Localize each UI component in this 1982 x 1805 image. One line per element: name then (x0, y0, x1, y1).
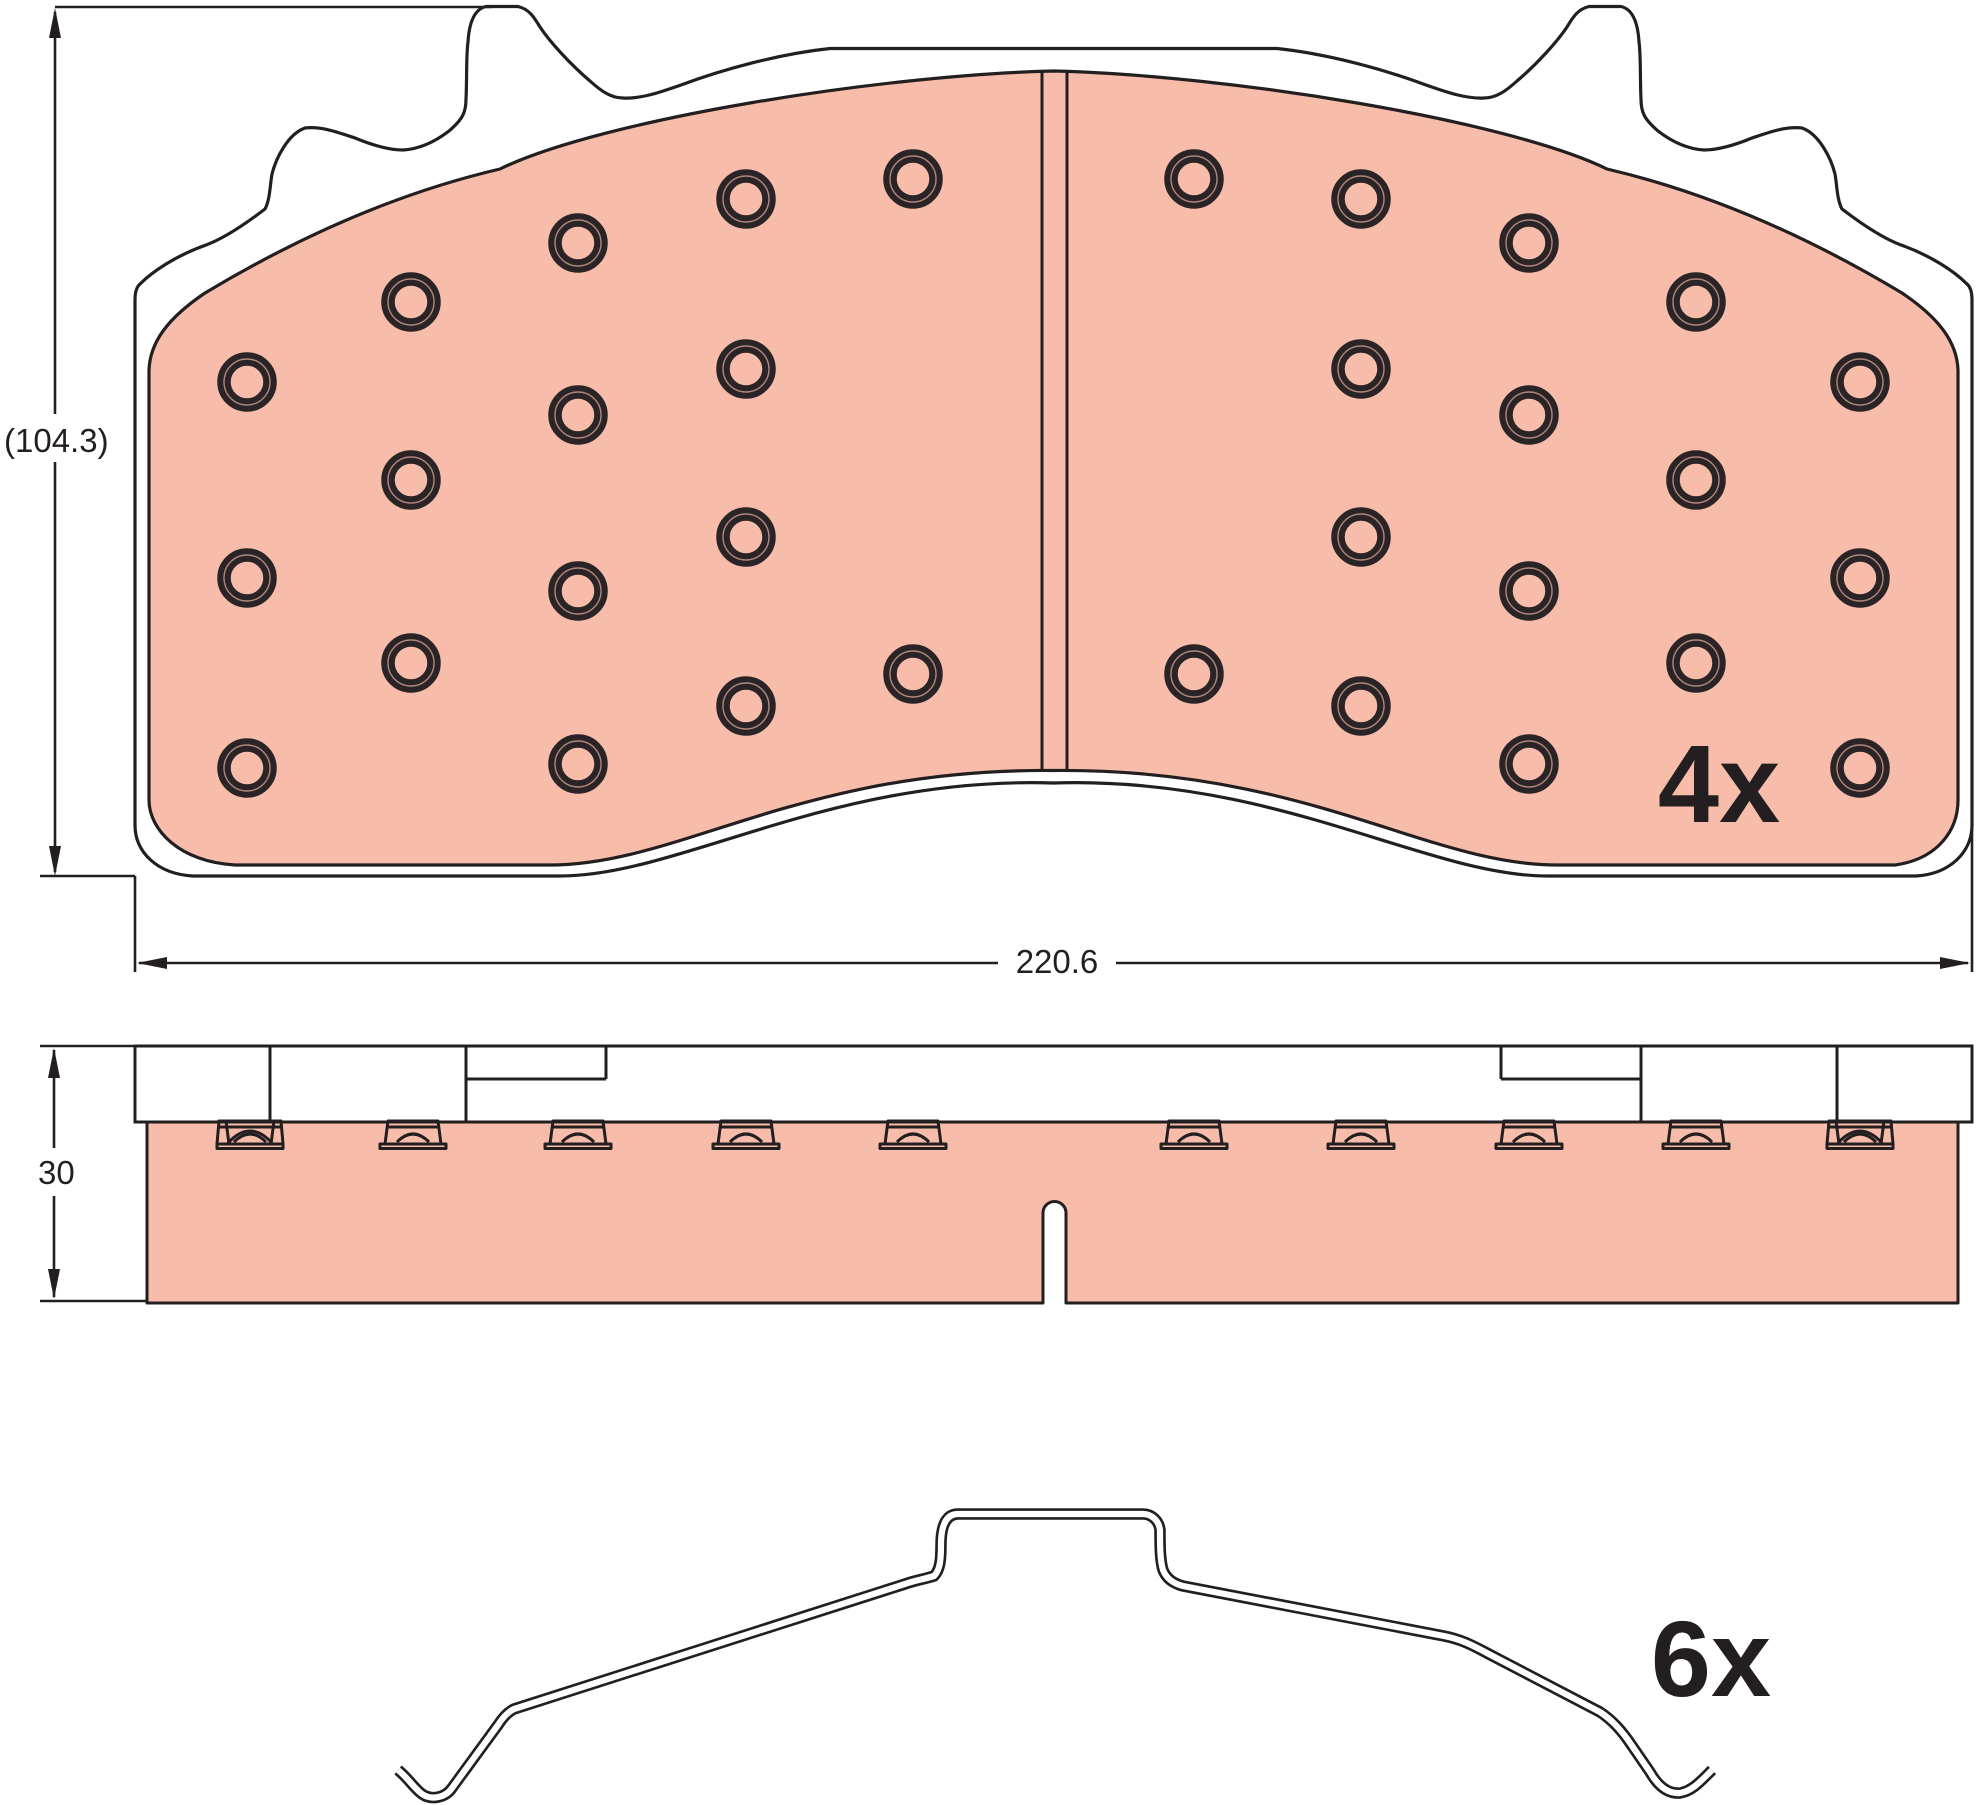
svg-text:4x: 4x (1658, 723, 1780, 846)
svg-text:220.6: 220.6 (1016, 943, 1099, 980)
svg-text:6x: 6x (1651, 1598, 1771, 1719)
svg-text:30: 30 (38, 1154, 75, 1191)
svg-text:(104.3): (104.3) (4, 422, 109, 459)
